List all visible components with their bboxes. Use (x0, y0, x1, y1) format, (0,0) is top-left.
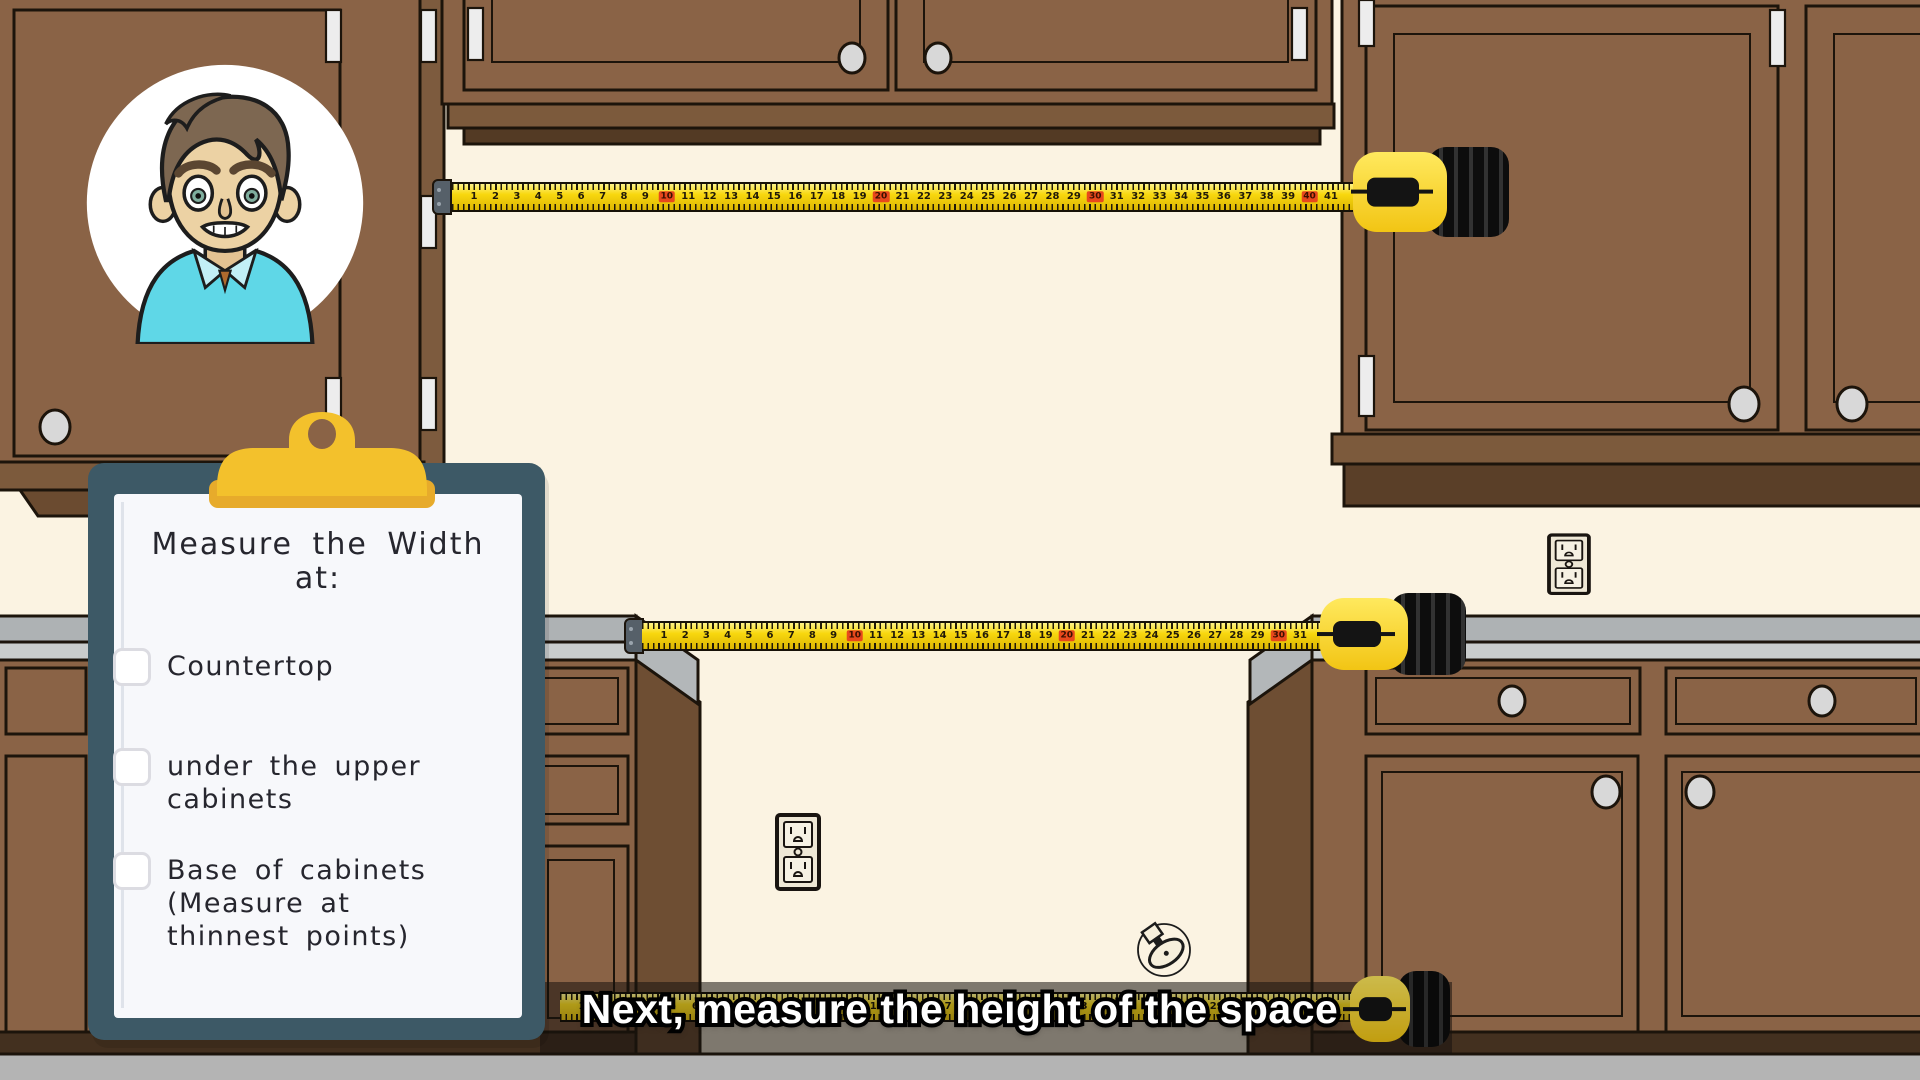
case-clip (1367, 178, 1418, 207)
checklist-item: under the upper cabinets (113, 748, 467, 816)
door-knob (40, 410, 70, 444)
checklist-item: Countertop (113, 648, 467, 686)
tape-numbers: 1234567891011121314151617181920212223242… (642, 623, 1322, 649)
upper-cabinet-right (1332, 0, 1920, 506)
drawer-knob (1499, 686, 1525, 716)
floor (0, 1054, 1920, 1080)
checklist-item-label: Base of cabinets (Measure at thinnest po… (167, 852, 467, 953)
drawer-knob (1809, 686, 1835, 716)
checkbox (113, 852, 151, 890)
clipboard: Measure the Width at: Countertop under t… (88, 404, 546, 1044)
kitchen-scene: 1234567891011121314151617181920212223242… (0, 0, 1920, 1080)
door-knob (1729, 387, 1759, 421)
duplex-outlet-icon (1549, 535, 1589, 593)
checklist-item-label: Countertop (167, 648, 467, 683)
checklist-title: Measure the Width at: (118, 528, 518, 596)
checkbox (113, 748, 151, 786)
checklist-title-line1: Measure the Width (152, 527, 485, 562)
tape-measure-top: 1234567891011121314151617181920212223242… (452, 182, 1353, 212)
hinge-icon (1359, 356, 1374, 416)
tape-measure-case (1353, 152, 1509, 232)
hinge-icon (421, 10, 436, 62)
presenter-avatar (84, 62, 366, 344)
tape-numbers: 1234567891011121314151617181920212223242… (452, 184, 1353, 210)
cabinet-molding (1332, 434, 1920, 464)
clipboard-clip (193, 404, 451, 508)
hinge-icon (1359, 0, 1374, 46)
subtitle-caption: Next, measure the height of the space Ne… (0, 986, 1920, 1033)
cabinet-molding (448, 104, 1334, 128)
upper-cabinet-middle (442, 0, 1334, 144)
gas-valve-icon (1133, 917, 1190, 976)
hinge-icon (1770, 10, 1785, 66)
duplex-outlet-icon (777, 815, 819, 889)
hinge-icon (1292, 8, 1307, 60)
door-knob (839, 43, 865, 73)
checklist-item: Base of cabinets (Measure at thinnest po… (113, 852, 467, 953)
door-knob (1592, 776, 1620, 808)
door-knob (1837, 387, 1867, 421)
door-knob (1686, 776, 1714, 808)
tape-hook (432, 179, 452, 215)
checkbox (113, 648, 151, 686)
case-clip (1333, 621, 1381, 647)
checklist-item-label: under the upper cabinets (167, 748, 467, 816)
door-knob (925, 43, 951, 73)
subtitle-caption-text: Next, measure the height of the space (582, 986, 1339, 1033)
tape-hook (624, 618, 644, 654)
checklist-title-line2: at: (295, 561, 341, 596)
cabinet-soffit (464, 128, 1320, 144)
hinge-icon (468, 8, 483, 60)
tape-measure-case (1320, 598, 1466, 670)
cabinet-soffit (1344, 464, 1920, 506)
tape-measure-middle: 1234567891011121314151617181920212223242… (642, 621, 1322, 651)
hinge-icon (326, 10, 341, 62)
